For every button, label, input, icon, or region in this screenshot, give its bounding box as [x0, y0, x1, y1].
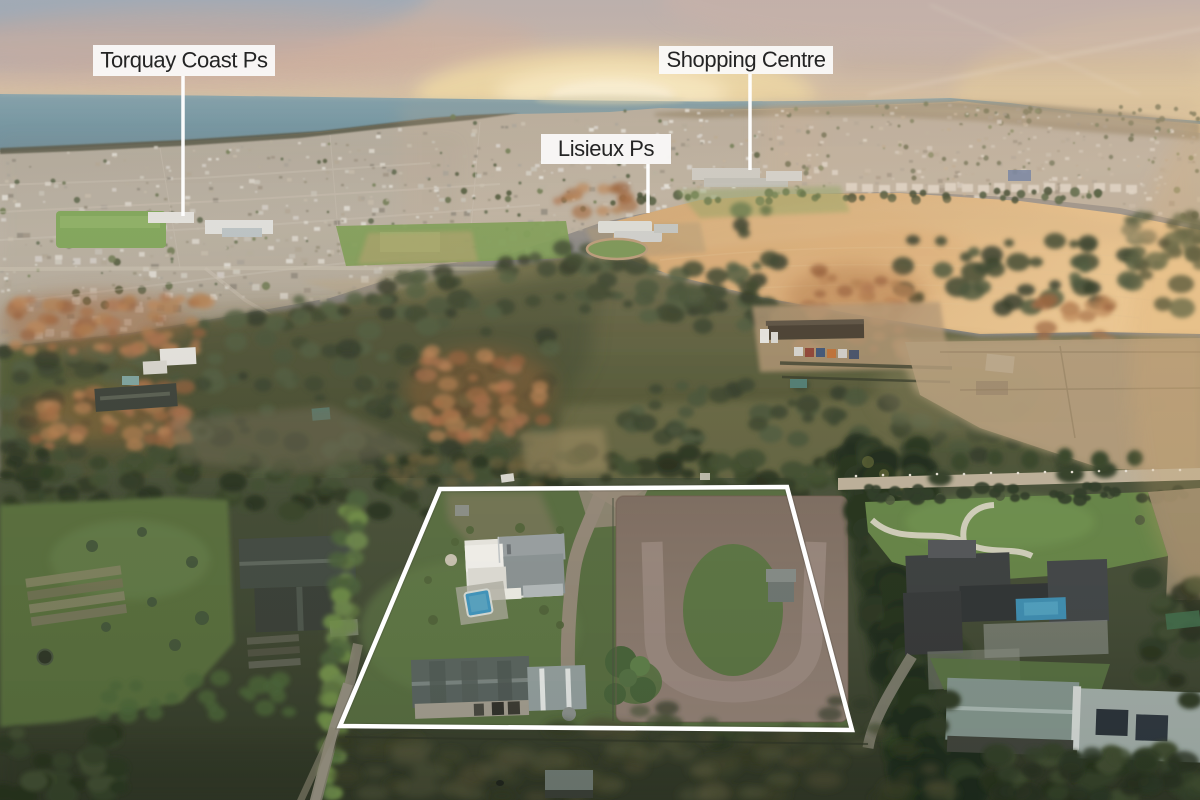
svg-text:Lisieux Ps: Lisieux Ps — [558, 136, 655, 161]
svg-text:Shopping Centre: Shopping Centre — [666, 47, 825, 72]
svg-text:Torquay Coast Ps: Torquay Coast Ps — [100, 48, 268, 73]
